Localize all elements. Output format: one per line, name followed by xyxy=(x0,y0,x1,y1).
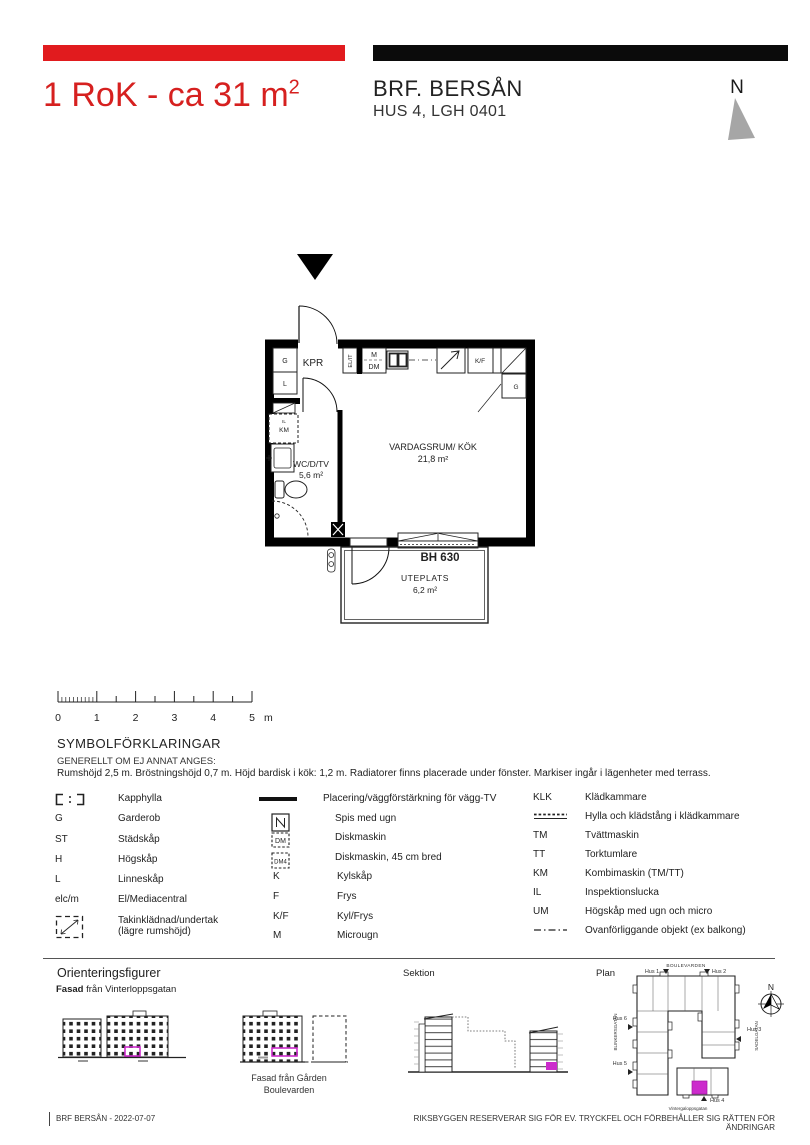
legend-column-2: Placering/väggförstärkning för vägg-TV S… xyxy=(259,793,496,950)
entrance-door-arc xyxy=(299,306,337,344)
km-unit: IL KM xyxy=(269,414,298,443)
project-title: BRF. BERSÅN xyxy=(373,76,523,102)
legend-row-dm45: DM4 Diskmaskin, 45 cm bred xyxy=(259,852,496,872)
legend-row-tv: Placering/väggförstärkning för vägg-TV xyxy=(259,793,496,813)
legend-label: Diskmaskin, 45 cm bred xyxy=(335,852,442,863)
plan-compass-icon: N xyxy=(758,982,784,1017)
floorplan-drawing: G L KPR EL/IT M DM xyxy=(255,245,545,630)
legend-sym: KLK xyxy=(533,792,585,803)
page-title: 1 RoK - ca 31 m2 xyxy=(43,76,300,115)
legend-sym: elc/m xyxy=(55,894,118,905)
sektion-drawing xyxy=(408,1014,568,1072)
wall-tv-line-icon xyxy=(259,793,323,801)
legend-label: Diskmaskin xyxy=(335,832,386,843)
takinkladnad-icon xyxy=(55,915,118,941)
legend-label: Microugn xyxy=(337,930,378,941)
legend-row-kyl: KKylskåp xyxy=(259,871,496,891)
dishwasher-icon: DM xyxy=(259,832,335,848)
orientation-figures: Fasad från Gården Boulevarden Sektion xyxy=(40,960,810,1112)
legend-sym: ST xyxy=(55,834,118,845)
kf-label: K/F xyxy=(475,358,485,365)
fasad2-caption-line1: Fasad från Gården xyxy=(251,1073,327,1083)
wc-room-label: WC/D/TV xyxy=(293,459,329,469)
legend-column-1: Kapphylla GGarderob STStädskåp HHögskåp … xyxy=(55,793,218,953)
stove-legend-icon xyxy=(259,813,335,832)
legend-row-il: ILInspektionslucka xyxy=(533,887,746,906)
legend-label: Frys xyxy=(337,891,356,902)
terrace-door-arc xyxy=(352,547,389,584)
legend-label: Kyl/Frys xyxy=(337,911,373,922)
kitchen-sink-icon xyxy=(387,351,408,369)
entrance-triangle-icon xyxy=(297,254,333,280)
terrace-door-panel xyxy=(350,538,387,546)
hus3-label: Hus 3 xyxy=(747,1027,761,1033)
shower-area-arc xyxy=(272,501,308,537)
apartment-highlight-sektion xyxy=(546,1062,557,1070)
page-title-sup: 2 xyxy=(289,77,300,99)
kapphylla-icon xyxy=(55,793,118,806)
legend-label: Torktumlare xyxy=(585,849,637,860)
fasad2-drawing xyxy=(240,1011,348,1062)
g2-leader-line xyxy=(478,384,501,412)
legend-label: Kylskåp xyxy=(337,871,372,882)
legend-label: Tvättmaskin xyxy=(585,830,639,841)
dishwasher-45-icon: DM4 xyxy=(259,852,335,869)
footer-disclaimer: RIKSBYGGEN RESERVERAR SIG FÖR EV. TRYCKF… xyxy=(390,1114,775,1132)
hus6-label: Hus 6 xyxy=(613,1016,627,1022)
overhead-object-line-icon xyxy=(533,925,585,935)
legend-label: Städskåp xyxy=(118,834,160,845)
legend-row-klk: KLKKlädkammare xyxy=(533,792,746,811)
dm-label: DM xyxy=(369,364,380,371)
legend-row-micro: MMicrougn xyxy=(259,930,496,950)
street-vintergaloppsgatan: Vintergaloppsgatan xyxy=(669,1106,708,1111)
terrace-label: UTEPLATS xyxy=(401,573,449,583)
fasad1-drawing xyxy=(58,1011,186,1062)
hall-kpr-label: KPR xyxy=(303,358,324,369)
legend-sym: K/F xyxy=(259,911,337,922)
legend-row-tt: TTTorktumlare xyxy=(533,849,746,868)
window xyxy=(398,533,478,548)
legend-heading: SYMBOLFÖRKLARINGAR xyxy=(57,736,221,751)
shelf-rail-icon xyxy=(533,811,585,822)
sektion-label: Sektion xyxy=(403,968,435,979)
apartment-highlight-plan xyxy=(692,1081,707,1094)
legend-sym: H xyxy=(55,854,118,865)
legend-label2: (lägre rumshöjd) xyxy=(118,926,191,937)
legend-row-takinkladnad: Takinklädnad/undertak(lägre rumshöjd) xyxy=(55,915,218,953)
legend-row-frys: FFrys xyxy=(259,891,496,911)
closet-g-label: G xyxy=(282,358,287,365)
scale-bar: 0 1 2 3 4 5 m xyxy=(50,683,285,728)
il-label: IL xyxy=(282,419,286,424)
living-room-label: VARDAGSRUM/ KÖK xyxy=(389,442,477,452)
legend-subheading: GENERELLT OM EJ ANNAT ANGES: xyxy=(57,756,216,767)
legend-label: Högskåp med ugn och micro xyxy=(585,906,712,917)
legend-row-tm: TMTvättmaskin xyxy=(533,830,746,849)
wc-door-block xyxy=(331,522,345,537)
street-boulevarden: BOULEVARDEN xyxy=(666,963,705,969)
north-compass-icon: N xyxy=(718,70,782,152)
scale-unit: m xyxy=(264,712,273,724)
red-accent-bar xyxy=(43,45,345,61)
hall-door-arc xyxy=(303,378,337,412)
legend-sym: G xyxy=(55,813,118,824)
legend-row-kylfrys: K/FKyl/Frys xyxy=(259,911,496,931)
scale-1: 1 xyxy=(94,712,100,724)
hus1-label: Hus 1 xyxy=(645,969,659,975)
drainpipe-icon xyxy=(328,549,336,572)
plan-label: Plan xyxy=(596,968,615,979)
legend-row-kapphylla: Kapphylla xyxy=(55,793,218,813)
legend-label: Garderob xyxy=(118,813,160,824)
scale-4: 4 xyxy=(210,712,216,724)
scale-0: 0 xyxy=(55,712,61,724)
legend-sym: IL xyxy=(533,887,585,898)
closet-g2-label: G xyxy=(513,384,518,391)
kitchen-wall-divider xyxy=(357,347,362,374)
hus2-label: Hus 2 xyxy=(712,969,726,975)
legend-sym: UM xyxy=(533,906,585,917)
legend-row-hylla: Hylla och klädstång i klädkammare xyxy=(533,811,746,830)
legend-row-garderob: GGarderob xyxy=(55,813,218,833)
legend-sym: K xyxy=(259,871,337,882)
closet-l-label: L xyxy=(283,381,287,388)
plan-compass-n: N xyxy=(768,982,774,992)
legend-label: Placering/väggförstärkning för vägg-TV xyxy=(323,793,496,804)
scale-5: 5 xyxy=(249,712,255,724)
el-it-label: EL/IT xyxy=(348,354,354,368)
legend-sym: KM xyxy=(533,868,585,879)
micro-label: M xyxy=(371,352,377,359)
footer-project-date: BRF BERSÅN - 2022-07-07 xyxy=(49,1112,155,1126)
compass-arrow xyxy=(728,98,755,140)
scale-3: 3 xyxy=(171,712,177,724)
section-divider xyxy=(43,958,775,959)
black-accent-bar xyxy=(373,45,788,61)
legend-label: Takinklädnad/undertak xyxy=(118,915,218,926)
legend-row-ovanfor: Ovanförliggande objekt (ex balkong) xyxy=(533,925,746,944)
legend-sym: F xyxy=(259,891,337,902)
window-height-label: BH 630 xyxy=(421,552,460,564)
legend-row-elmedia: elc/mEl/Mediacentral xyxy=(55,894,218,914)
legend-label: Hylla och klädstång i klädkammare xyxy=(585,811,740,822)
wc-area-label: 5,6 m² xyxy=(299,470,323,480)
legend-label: Kombimaskin (TM/TT) xyxy=(585,868,684,879)
legend-row-dm: DM Diskmaskin xyxy=(259,832,496,852)
legend-label: Inspektionslucka xyxy=(585,887,659,898)
terrace-area-label: 6,2 m² xyxy=(413,585,437,595)
floorplan-page: 1 RoK - ca 31 m2 BRF. BERSÅN HUS 4, LGH … xyxy=(0,0,810,1145)
legend-row-um: UMHögskåp med ugn och micro xyxy=(533,906,746,925)
legend-sym: L xyxy=(55,874,118,885)
floor-drain-icon xyxy=(275,514,279,518)
legend-sym: TT xyxy=(533,849,585,860)
km-label: KM xyxy=(279,427,289,434)
legend-label: Ovanförliggande objekt (ex balkong) xyxy=(585,925,746,936)
legend-label-2line: Takinklädnad/undertak(lägre rumshöjd) xyxy=(118,915,218,937)
legend-label: Linneskåp xyxy=(118,874,164,885)
fasad2-caption-line2: Boulevarden xyxy=(264,1085,315,1095)
legend-row-hogskap: HHögskåp xyxy=(55,854,218,874)
legend-label: Kapphylla xyxy=(118,793,162,804)
shelf-box xyxy=(273,403,295,413)
hus5-label: Hus 5 xyxy=(613,1061,627,1067)
page-title-text: 1 RoK - ca 31 m xyxy=(43,76,289,114)
legend-sym: M xyxy=(259,930,337,941)
hus4-label: Hus 4 xyxy=(710,1098,724,1104)
dm45-sym: DM4 xyxy=(274,859,287,865)
dm-sym: DM xyxy=(275,838,286,845)
living-area-label: 21,8 m² xyxy=(418,454,449,464)
legend-row-km: KMKombimaskin (TM/TT) xyxy=(533,868,746,887)
toilet-icon xyxy=(275,481,307,498)
legend-label: Högskåp xyxy=(118,854,157,865)
legend-sym: TM xyxy=(533,830,585,841)
legend-label: Spis med ugn xyxy=(335,813,396,824)
legend-column-3: KLKKlädkammare Hylla och klädstång i klä… xyxy=(533,792,746,944)
legend-row-spis: Spis med ugn xyxy=(259,813,496,833)
legend-note: Rumshöjd 2,5 m. Bröstningshöjd 0,7 m. Hö… xyxy=(57,768,767,779)
street-sadelgatan: SADELGATAN xyxy=(754,1021,759,1051)
legend-row-linneskap: LLinneskåp xyxy=(55,874,218,894)
legend-label: El/Mediacentral xyxy=(118,894,187,905)
legend-label: Klädkammare xyxy=(585,792,647,803)
site-plan-drawing xyxy=(628,969,741,1101)
unit-subtitle: HUS 4, LGH 0401 xyxy=(373,103,506,121)
scale-2: 2 xyxy=(133,712,139,724)
compass-n-label: N xyxy=(730,77,744,98)
legend-row-stadskap: STStädskåp xyxy=(55,834,218,854)
